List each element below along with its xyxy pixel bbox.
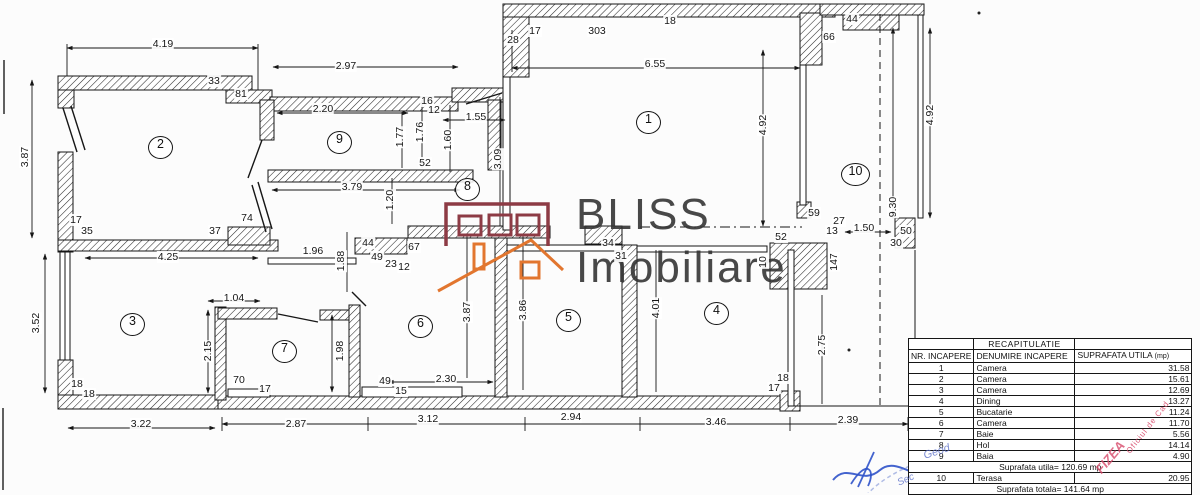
col-header-nr: NR. INCAPERE <box>909 350 974 363</box>
room-number-8: 8 <box>455 178 480 201</box>
floorplan-page: { "logo": { "line1": "BLISS", "line2": "… <box>0 0 1200 493</box>
row-name: Terasa <box>974 473 1075 484</box>
row-nr: 7 <box>909 429 974 440</box>
dim-label: 70 <box>232 374 246 386</box>
row-name: Camera <box>974 418 1075 429</box>
dim-label: 1.76 <box>414 121 426 143</box>
room-number-6: 6 <box>408 315 433 338</box>
row-nr: 4 <box>909 396 974 407</box>
row-name: Camera <box>974 374 1075 385</box>
dim-label: 3.22 <box>130 418 152 430</box>
dim-label: 23 <box>384 258 398 270</box>
dim-label: 18 <box>663 15 677 27</box>
dim-label: 18 <box>82 388 96 400</box>
dim-label: 17 <box>767 382 781 394</box>
dim-label: 4.01 <box>650 297 662 319</box>
dim-label: 17 <box>528 25 542 37</box>
row-name: Baia <box>974 451 1075 462</box>
row-area: 12.69 <box>1075 385 1192 396</box>
row-name: Camera <box>974 385 1075 396</box>
title-spacer-left <box>909 339 974 350</box>
dim-label: 3.87 <box>461 301 473 323</box>
row-area: 11.24 <box>1075 407 1192 418</box>
room-number-9: 9 <box>327 131 352 154</box>
table-row: 2Camera15.61 <box>909 374 1192 385</box>
col-header-area-unit: (mp) <box>1153 353 1169 360</box>
dim-label: 9.30 <box>887 196 899 218</box>
dim-label: 4.92 <box>757 114 769 136</box>
row-nr: 3 <box>909 385 974 396</box>
subtotal-row: Suprafata utila= 120.69 mp <box>909 462 1192 473</box>
row-nr: 5 <box>909 407 974 418</box>
dim-label: 1.20 <box>384 189 396 211</box>
dim-label: 49 <box>378 375 392 387</box>
dim-label: 66 <box>822 31 836 43</box>
logo-text-bliss: BLISS <box>576 190 711 240</box>
dim-label: 37 <box>208 225 222 237</box>
dim-label: 303 <box>587 25 607 37</box>
dim-label: 49 <box>370 251 384 263</box>
dim-label: 3.86 <box>517 299 529 321</box>
dim-label: 44 <box>845 13 859 25</box>
row-name: Baie <box>974 429 1075 440</box>
room-number-7: 7 <box>272 340 297 363</box>
dim-label: 2.97 <box>335 60 357 72</box>
dim-label: 1.50 <box>853 222 875 234</box>
dim-label: 4.92 <box>924 104 936 126</box>
row-name: Camera <box>974 363 1075 374</box>
dim-label: 3.09 <box>492 148 504 170</box>
dim-label: 17 <box>258 383 272 395</box>
dim-label: 74 <box>240 212 254 224</box>
table-row: 4Dining13.27 <box>909 396 1192 407</box>
dim-label: 59 <box>807 207 821 219</box>
table-row: 3Camera12.69 <box>909 385 1192 396</box>
dim-label: 2.15 <box>202 340 214 362</box>
dim-label: 28 <box>506 34 520 46</box>
dim-label: 1.98 <box>334 340 346 362</box>
dim-label: 12 <box>397 261 411 273</box>
row-name: Hol <box>974 440 1075 451</box>
dim-label: 52 <box>418 157 432 169</box>
row-name: Dining <box>974 396 1075 407</box>
dim-label: 1.55 <box>465 111 487 123</box>
dim-label: 33 <box>207 75 221 87</box>
dim-label: 1.96 <box>302 245 324 257</box>
dim-label: 2.20 <box>312 103 334 115</box>
dim-label: 67 <box>407 241 421 253</box>
dim-label: 3.87 <box>19 146 31 168</box>
row-nr: 2 <box>909 374 974 385</box>
door-lines <box>63 93 502 322</box>
dim-label: 1.77 <box>394 126 406 148</box>
dim-label: 2.75 <box>816 334 828 356</box>
dim-label: 15 <box>394 385 408 397</box>
row-area: 15.61 <box>1075 374 1192 385</box>
row-area: 20.95 <box>1075 473 1192 484</box>
dim-label: 1.04 <box>223 292 245 304</box>
row-area: 13.27 <box>1075 396 1192 407</box>
col-header-area-text: SUPRAFATA UTILA <box>1077 350 1152 360</box>
table-row: 1Camera31.58 <box>909 363 1192 374</box>
row-nr: 1 <box>909 363 974 374</box>
row-area: 11.70 <box>1075 418 1192 429</box>
table-header-row: NR. INCAPERE DENUMIRE INCAPERE SUPRAFATA… <box>909 350 1192 363</box>
table-title: RECAPITULATIE <box>974 339 1075 350</box>
dim-label: 31 <box>614 250 628 262</box>
dim-label: 30 <box>889 237 903 249</box>
col-header-area: SUPRAFATA UTILA (mp) <box>1075 350 1192 363</box>
dim-label: 12 <box>427 104 441 116</box>
subtotal-cell: Suprafata utila= 120.69 mp <box>909 462 1192 473</box>
dim-label: 2.94 <box>560 411 582 423</box>
dim-label: 3.46 <box>705 416 727 428</box>
dim-label: 1.88 <box>335 250 347 272</box>
room-number-4: 4 <box>704 302 729 325</box>
dim-label: 52 <box>774 231 788 243</box>
room-number-10: 10 <box>841 163 870 186</box>
dim-label: 13 <box>825 225 839 237</box>
dim-label: 2.87 <box>285 418 307 430</box>
dim-label: 6.55 <box>644 58 666 70</box>
table-title-row: RECAPITULATIE <box>909 339 1192 350</box>
col-header-name: DENUMIRE INCAPERE <box>974 350 1075 363</box>
title-spacer-right <box>1075 339 1192 350</box>
dim-label: 3.52 <box>30 312 42 334</box>
row-nr: 6 <box>909 418 974 429</box>
table-row: 8Hol14.14 <box>909 440 1192 451</box>
dim-label: 10 <box>757 255 769 269</box>
dim-label: 81 <box>234 88 248 100</box>
dim-label: 3.79 <box>341 181 363 193</box>
dim-label: 1.60 <box>442 129 454 151</box>
row-area: 31.58 <box>1075 363 1192 374</box>
room-number-5: 5 <box>556 309 581 332</box>
dim-label: 35 <box>80 225 94 237</box>
dim-label: 3.12 <box>417 413 439 425</box>
row-name: Bucatarie <box>974 407 1075 418</box>
thin-walls <box>60 15 923 406</box>
room-number-1: 1 <box>636 111 661 134</box>
row-nr: 10 <box>909 473 974 484</box>
dim-label: 147 <box>828 252 840 272</box>
dim-label: 34 <box>601 237 615 249</box>
dim-label: 2.30 <box>435 373 457 385</box>
dim-label: 4.25 <box>157 251 179 263</box>
room-number-2: 2 <box>148 136 173 159</box>
table-row: 10Terasa20.95 <box>909 473 1192 484</box>
dim-label: 4.19 <box>152 38 174 50</box>
dim-label: 2.39 <box>837 414 859 426</box>
dim-label: 44 <box>361 237 375 249</box>
room-number-3: 3 <box>120 313 145 336</box>
logo-text-imobiliare: Imobiliare <box>576 243 787 293</box>
dim-label: 50 <box>899 225 913 237</box>
